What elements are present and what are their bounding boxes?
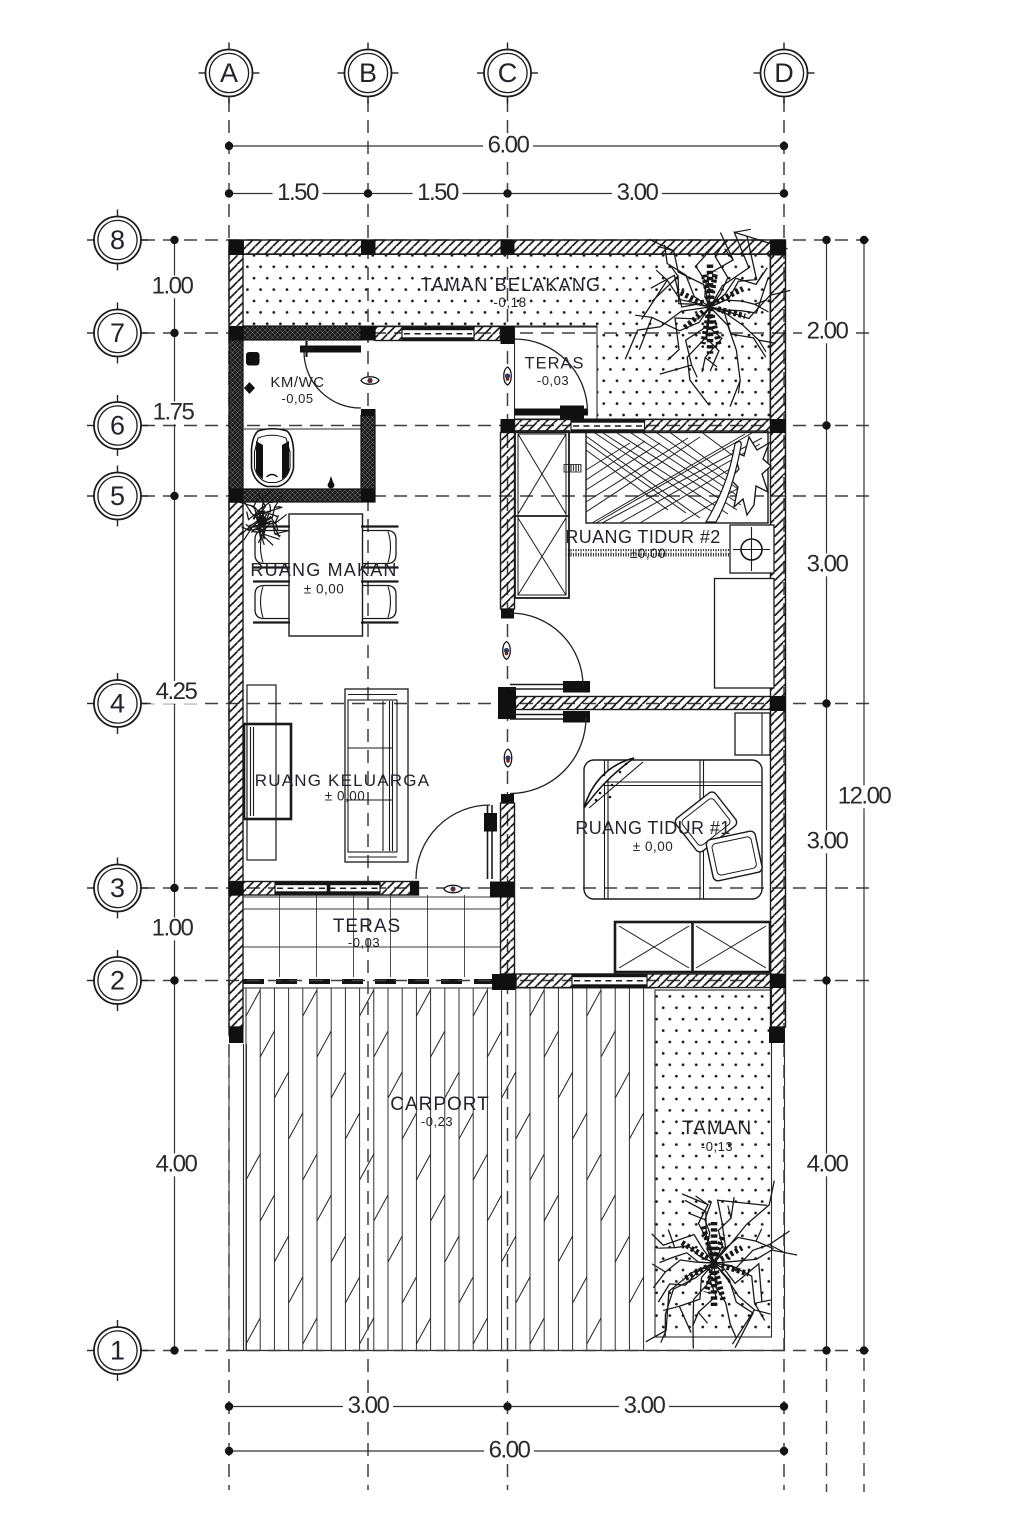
svg-text:±0,00: ±0,00 [630,546,666,561]
svg-text:3.00: 3.00 [807,551,849,578]
svg-text:-0,03: -0,03 [348,935,380,950]
svg-text:± 0,00: ± 0,00 [633,839,673,854]
svg-text:1.00: 1.00 [152,915,194,942]
svg-text:TAMAN BELAKANG: TAMAN BELAKANG [421,275,602,295]
svg-text:± 0,00: ± 0,00 [325,789,365,804]
svg-text:6: 6 [110,411,125,441]
svg-text:3.00: 3.00 [348,1392,390,1419]
svg-text:2.00: 2.00 [807,318,849,345]
svg-text:5: 5 [110,481,125,511]
svg-text:CARPORT: CARPORT [390,1094,490,1115]
svg-text:6.00: 6.00 [489,1437,531,1464]
svg-text:4.25: 4.25 [156,678,198,705]
svg-text:-0,13: -0,13 [701,1139,733,1154]
svg-text:4: 4 [110,689,125,719]
svg-text:8: 8 [110,225,125,255]
svg-text:1.50: 1.50 [277,179,319,206]
svg-text:B: B [359,58,377,88]
svg-text:A: A [220,58,238,88]
svg-text:TERAS: TERAS [524,355,584,373]
svg-text:7: 7 [110,318,125,348]
svg-text:4.00: 4.00 [807,1151,849,1178]
svg-text:3.00: 3.00 [624,1392,666,1419]
svg-text:3.00: 3.00 [807,828,849,855]
svg-text:TAMAN: TAMAN [682,1118,752,1139]
svg-text:1.75: 1.75 [153,399,195,426]
svg-text:-0,18: -0,18 [493,295,526,310]
svg-text:C: C [498,58,518,88]
svg-text:RUANG MAKAN: RUANG MAKAN [250,560,397,580]
svg-text:D: D [774,58,794,88]
svg-text:3.00: 3.00 [617,179,659,206]
svg-text:KM/WC: KM/WC [270,374,324,391]
svg-text:-0,03: -0,03 [537,373,569,388]
svg-text:2: 2 [110,966,125,996]
svg-text:RUANG TIDUR #2: RUANG TIDUR #2 [565,527,720,547]
svg-text:-0,05: -0,05 [281,391,313,406]
svg-text:1.50: 1.50 [417,179,459,206]
svg-text:TERAS: TERAS [333,916,401,937]
svg-text:1.00: 1.00 [152,273,194,300]
svg-text:RUANG KELUARGA: RUANG KELUARGA [255,771,431,790]
svg-text:3: 3 [110,873,125,903]
svg-text:6.00: 6.00 [488,132,530,159]
svg-text:± 0,00: ± 0,00 [304,582,344,597]
svg-text:RUANG TIDUR #1: RUANG TIDUR #1 [575,818,730,838]
svg-text:1: 1 [110,1336,125,1366]
svg-text:-0,23: -0,23 [421,1114,453,1129]
svg-text:4.00: 4.00 [156,1151,198,1178]
svg-text:12.00: 12.00 [838,783,892,810]
